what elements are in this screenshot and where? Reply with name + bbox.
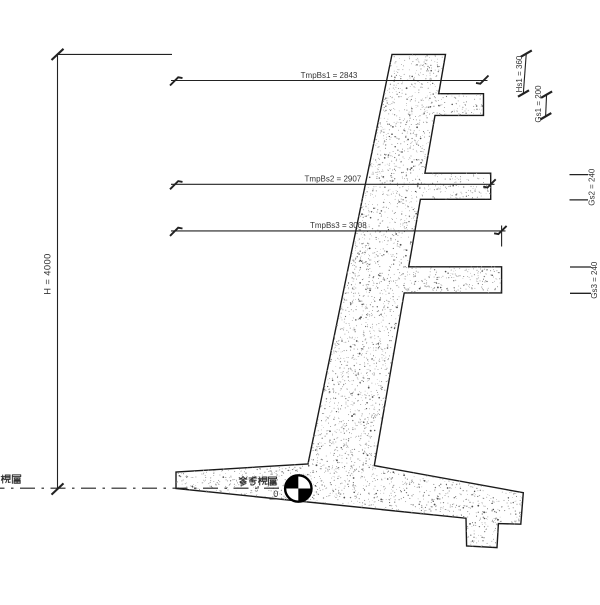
svg-text:Hs1 = 360: Hs1 = 360 (515, 55, 524, 92)
svg-text:H = 4000: H = 4000 (42, 253, 53, 295)
svg-text:Gs2 = 240: Gs2 = 240 (588, 168, 597, 206)
svg-text:0: 0 (273, 489, 278, 499)
svg-text:Gs3 = 240: Gs3 = 240 (590, 261, 599, 299)
svg-text:TmpBs3 = 3008: TmpBs3 = 3008 (310, 221, 367, 230)
svg-text:TmpBs2 = 2907: TmpBs2 = 2907 (305, 175, 362, 184)
svg-text:TmpBs1 = 2843: TmpBs1 = 2843 (301, 71, 358, 80)
svg-text:Gs1 = 200: Gs1 = 200 (534, 85, 543, 123)
